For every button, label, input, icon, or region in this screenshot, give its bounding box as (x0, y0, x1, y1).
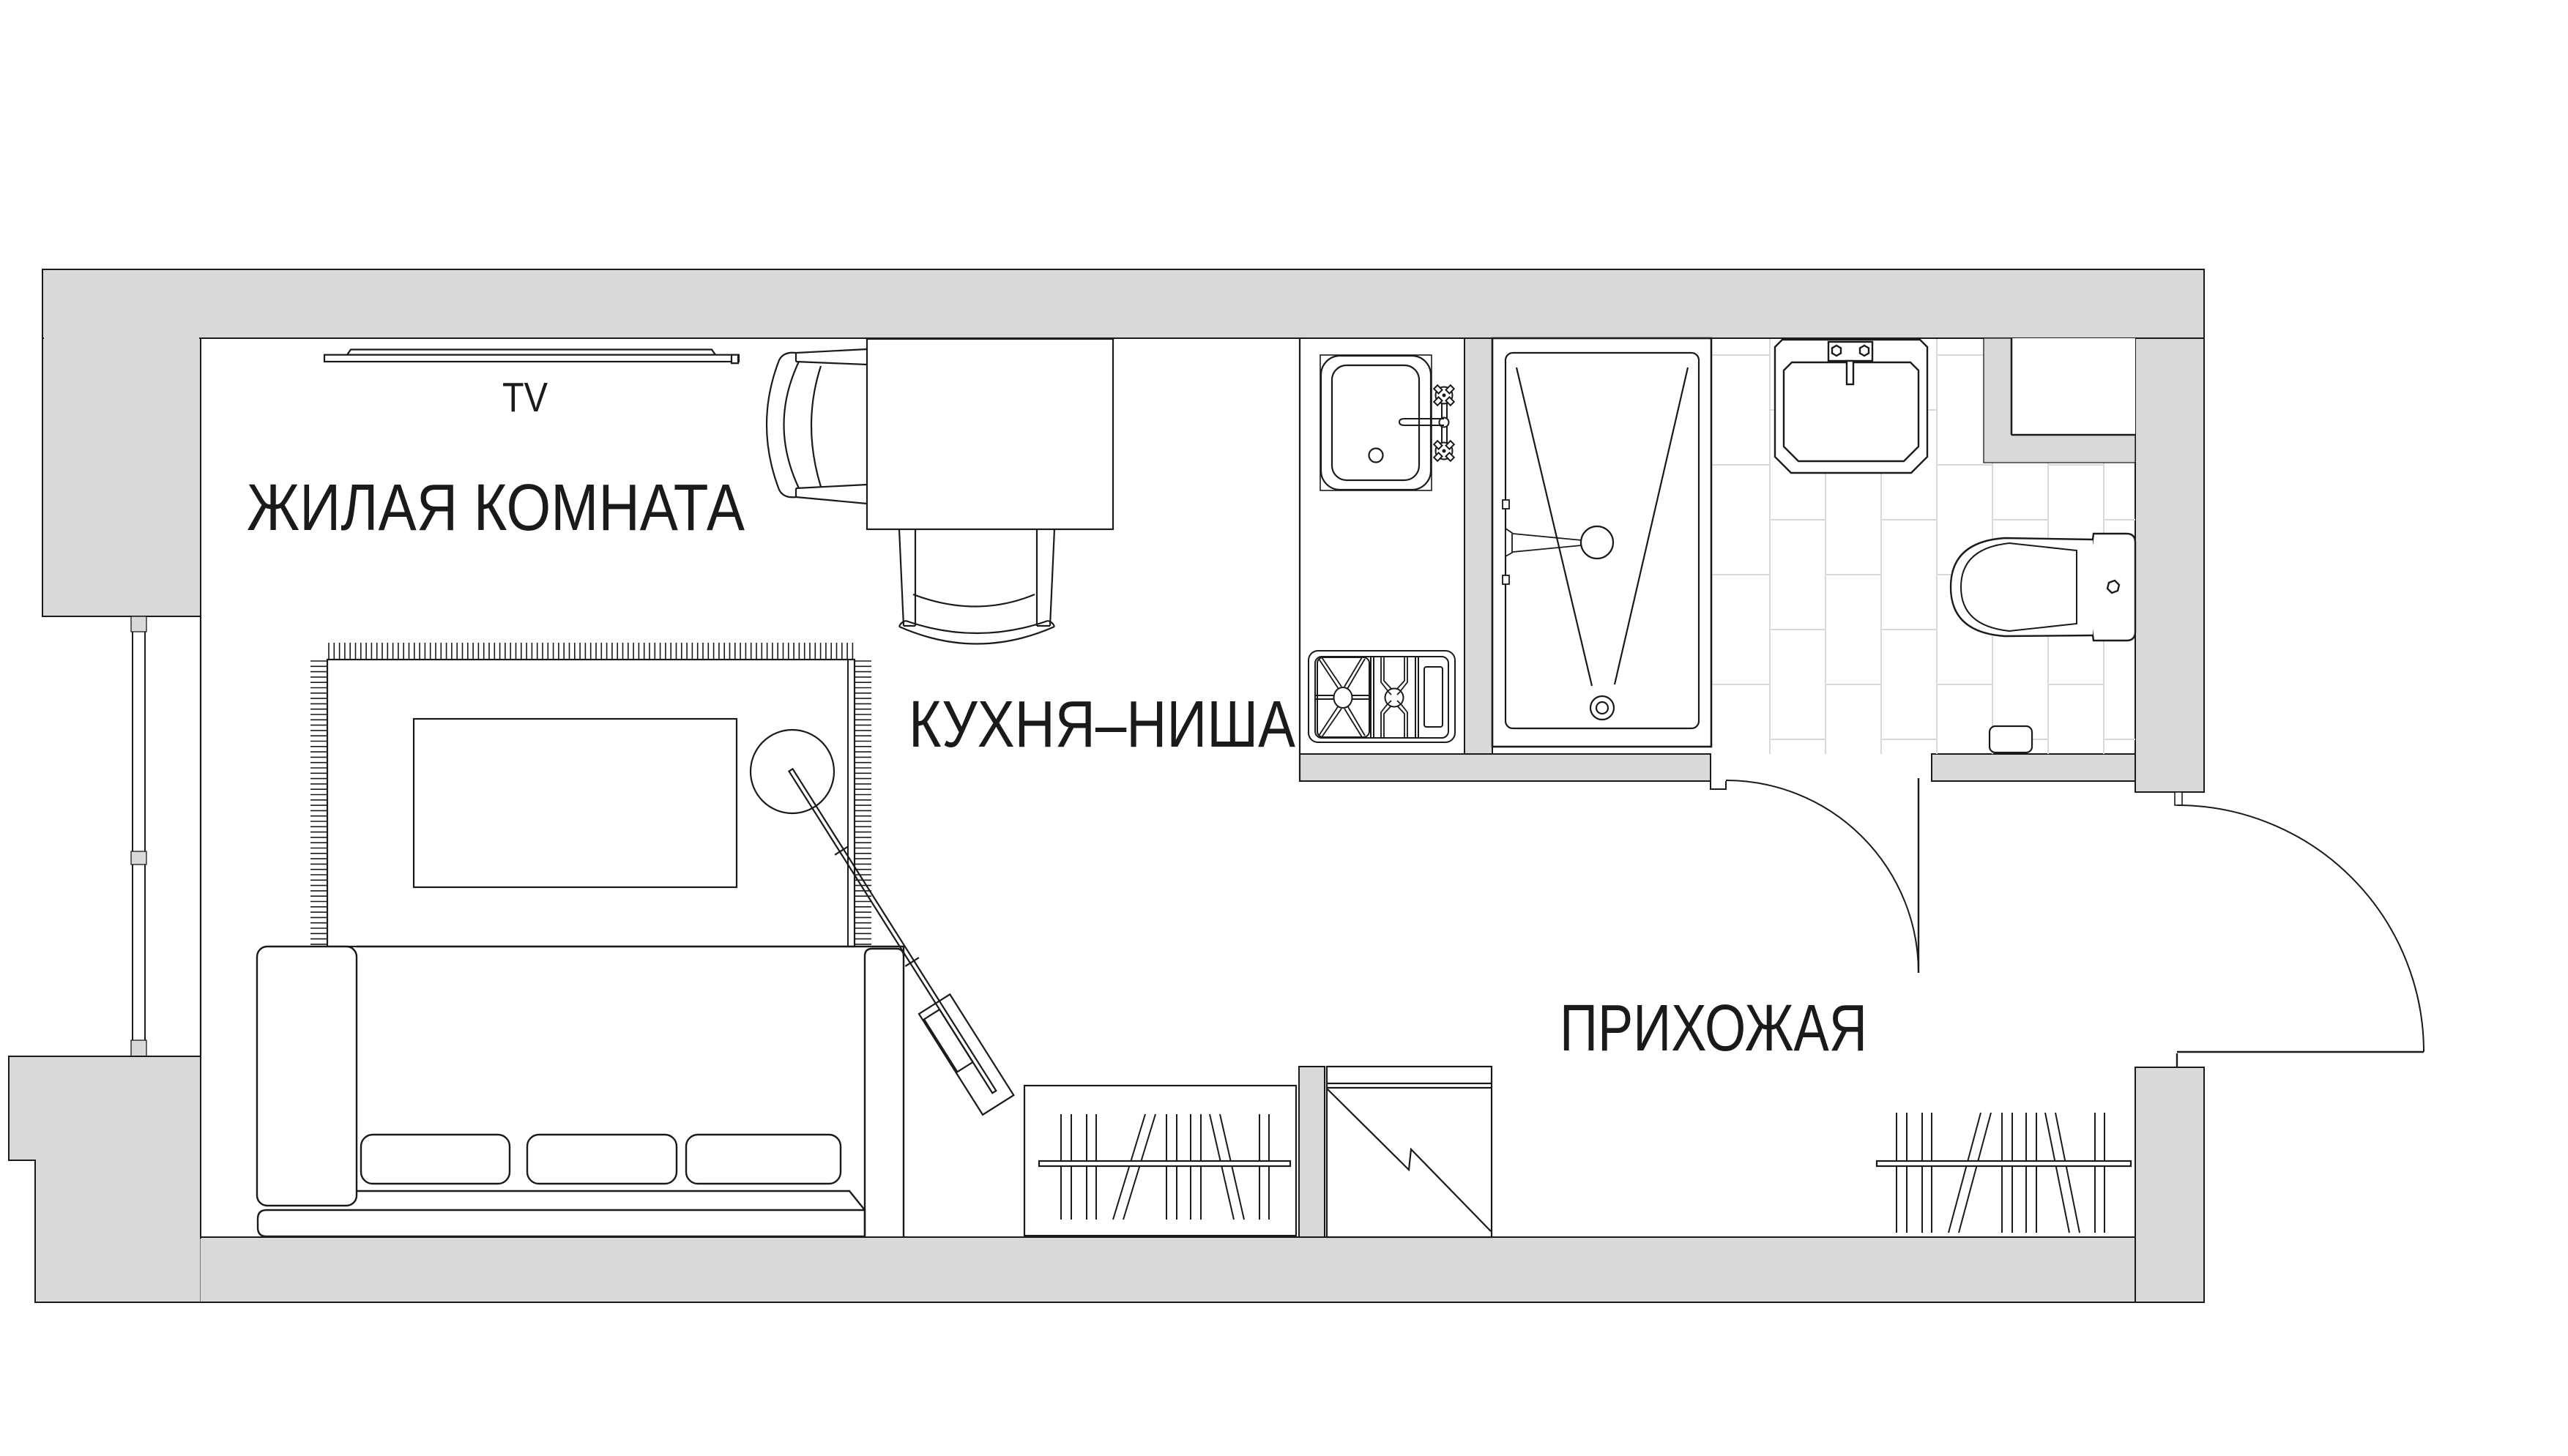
svg-text:TV: TV (502, 374, 548, 421)
svg-text:ЖИЛАЯ КОМНАТА: ЖИЛАЯ КОМНАТА (247, 471, 745, 545)
svg-text:ПРИХОЖАЯ: ПРИХОЖАЯ (1560, 992, 1867, 1065)
svg-text:КУХНЯ–НИША: КУХНЯ–НИША (909, 688, 1295, 761)
